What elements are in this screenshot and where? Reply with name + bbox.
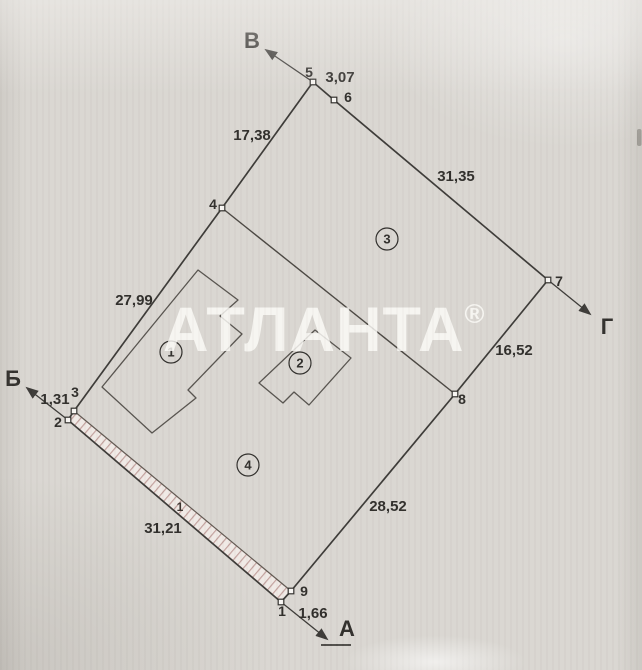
direction-south-label: А [339,616,355,641]
dim-5-6: 3,07 [325,69,354,86]
dim-9-1: 1,66 [298,605,327,622]
survey-plan-scan: 3,07 31,35 16,52 28,52 1,66 31,21 1,31 2… [0,0,642,670]
dim-4-5: 17,38 [233,127,271,144]
building-2-outline [259,330,351,405]
marker-p3 [71,408,77,414]
label-p3: 3 [71,384,79,400]
marker-p9 [288,588,294,594]
region-3-number: 3 [383,232,390,247]
plan-drawing: 3,07 31,35 16,52 28,52 1,66 31,21 1,31 2… [0,0,642,670]
dim-7-8: 16,52 [495,342,533,359]
direction-east-label: Г [601,314,614,339]
marker-p7 [545,277,551,283]
fence-section-marker: 1 [177,500,184,514]
dim-3-4: 27,99 [115,292,153,309]
dim-8-9: 28,52 [369,498,407,515]
label-p2: 2 [54,414,62,430]
dim-6-7: 31,35 [437,168,475,185]
region-badges [160,228,398,476]
region-4-number: 4 [244,458,252,473]
dim-1-2: 31,21 [144,520,182,537]
dim-2-3: 1,31 [40,391,69,408]
marker-p2 [65,417,71,423]
label-p4: 4 [209,196,217,212]
point-markers [65,79,551,605]
direction-west-label: Б [5,366,21,391]
label-p8: 8 [458,391,466,407]
label-p5: 5 [305,64,313,80]
marker-p5 [310,79,316,85]
label-p9: 9 [300,583,308,599]
plot-boundary [68,82,548,602]
region-1-number: 1 [167,345,174,360]
marker-p4 [219,205,225,211]
marker-p8 [452,391,458,397]
divider-line-4-8 [222,208,455,394]
marker-p6 [331,97,337,103]
region-2-number: 2 [296,356,303,371]
direction-north-label: В [244,28,260,53]
label-p7: 7 [555,273,563,289]
label-p1: 1 [278,603,286,619]
scan-artifact [637,129,642,146]
label-p6: 6 [344,89,352,105]
